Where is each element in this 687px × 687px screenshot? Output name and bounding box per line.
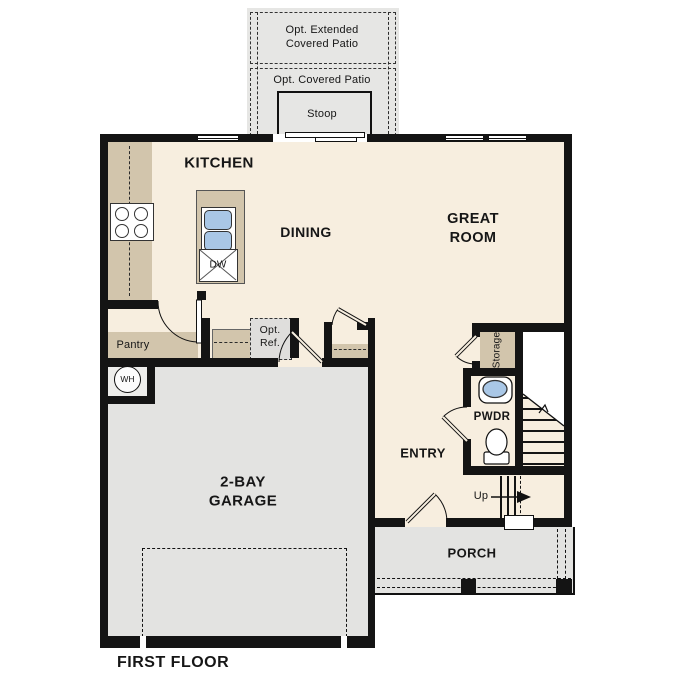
storage-door-arc: [456, 356, 476, 364]
pantry-door-arc: [158, 301, 197, 342]
pwdr-label: PWDR: [474, 411, 511, 423]
up-label: Up: [474, 490, 488, 502]
garage-label: 2-BAY GARAGE: [209, 474, 277, 511]
pantry-door-leaf: [197, 300, 202, 343]
stoop-label: Stoop: [307, 108, 337, 120]
garage-door-leaf: [292, 332, 322, 362]
storage-label: Storage: [492, 332, 503, 368]
pwdr-door-leaf: [443, 417, 467, 441]
entry-label: ENTRY: [400, 446, 446, 461]
kitchen-label: KITCHEN: [184, 155, 253, 172]
pwdr-sink-bowl: [483, 381, 507, 398]
floor-plan: KITCHEN DINING GREAT ROOM 2-BAY GARAGE E…: [0, 0, 687, 687]
closet-door-arc: [332, 309, 338, 325]
great-room-label-line1: GREAT: [447, 210, 499, 229]
dw-label: DW: [209, 260, 226, 271]
front-door-arc: [435, 494, 447, 522]
stair-break-mask: [523, 332, 564, 426]
great-room-label-line2: ROOM: [447, 229, 499, 248]
garage-door-arc: [279, 332, 292, 362]
extended-patio-label-line2: Covered Patio: [286, 37, 359, 51]
pantry-label: Pantry: [117, 339, 150, 351]
covered-patio-label: Opt. Covered Patio: [273, 74, 370, 86]
opt-ref-label-line1: Opt.: [260, 324, 281, 337]
great-room-label: GREAT ROOM: [447, 210, 499, 248]
opt-ref-label-line2: Ref.: [260, 337, 281, 350]
water-heater: WH: [114, 366, 141, 393]
front-door-leaf: [407, 494, 435, 522]
up-arrow-head: [517, 491, 531, 503]
extended-patio-label-line1: Opt. Extended: [286, 23, 359, 37]
closet-door-leaf: [338, 309, 366, 325]
extended-patio-label: Opt. Extended Covered Patio: [286, 23, 359, 51]
toilet-bowl: [486, 429, 507, 455]
fixtures-overlay: [0, 0, 687, 687]
garage-label-line2: GARAGE: [209, 492, 277, 511]
porch-label: PORCH: [448, 546, 497, 561]
dining-label: DINING: [280, 224, 331, 240]
pwdr-door-arc: [443, 407, 467, 417]
garage-label-line1: 2-BAY: [209, 474, 277, 493]
floor-title: FIRST FLOOR: [117, 654, 229, 672]
opt-ref-label: Opt. Ref.: [260, 324, 281, 350]
storage-door-leaf: [456, 336, 476, 356]
